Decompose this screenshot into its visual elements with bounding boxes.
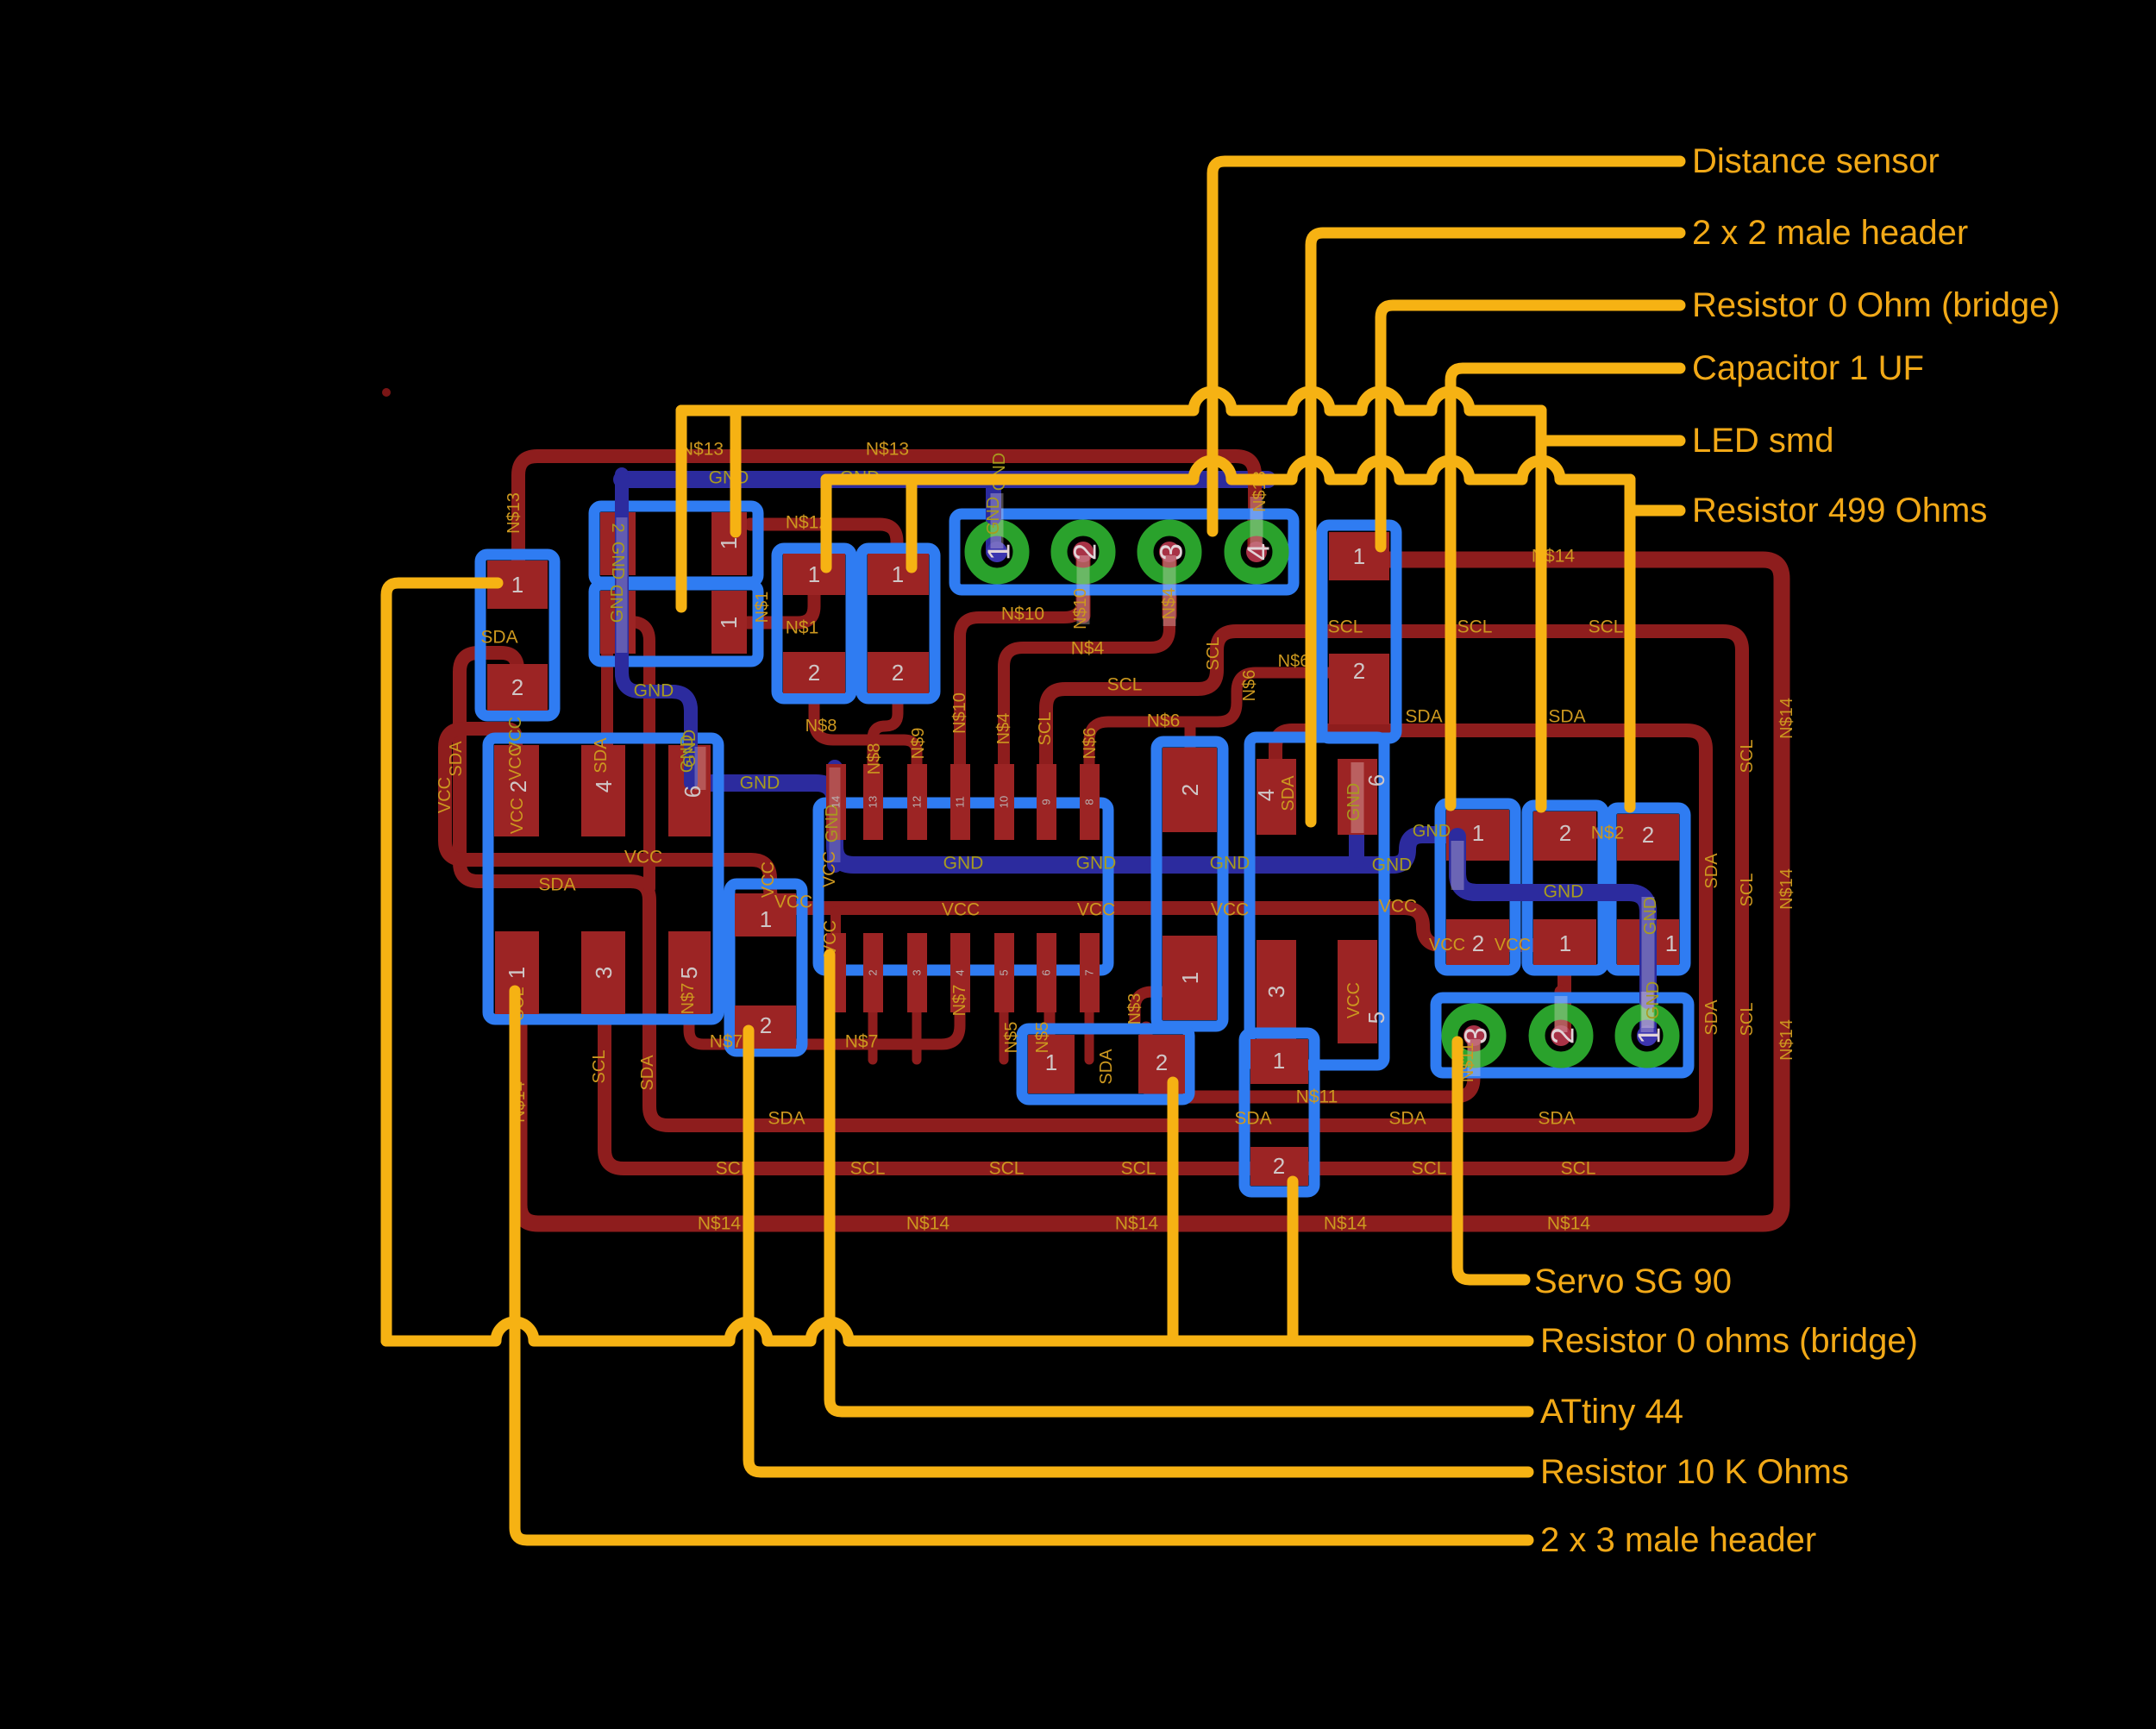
- svg-text:N$6: N$6: [1081, 728, 1100, 760]
- svg-text:8: 8: [1083, 799, 1096, 805]
- svg-text:2: 2: [608, 523, 627, 532]
- svg-text:6: 6: [1363, 774, 1389, 786]
- svg-text:SDA: SDA: [1234, 1109, 1271, 1129]
- svg-text:2: 2: [505, 780, 531, 792]
- svg-text:N$2: N$2: [1591, 824, 1625, 843]
- svg-text:N$10: N$10: [1071, 588, 1090, 630]
- svg-text:SDA: SDA: [1279, 775, 1298, 811]
- svg-text:10: 10: [998, 796, 1011, 808]
- svg-text:VCC: VCC: [1429, 936, 1465, 955]
- svg-text:GND: GND: [1210, 854, 1250, 874]
- svg-text:VCC: VCC: [1344, 982, 1363, 1018]
- svg-text:SCL: SCL: [1121, 1159, 1156, 1179]
- svg-text:GND: GND: [990, 453, 1009, 491]
- svg-text:1: 1: [1559, 930, 1571, 956]
- svg-text:SDA: SDA: [1405, 707, 1442, 727]
- svg-text:N$14: N$14: [1115, 1214, 1159, 1234]
- svg-text:5: 5: [676, 967, 702, 979]
- svg-text:N$14: N$14: [1777, 1019, 1796, 1061]
- svg-text:13: 13: [867, 796, 880, 808]
- svg-text:1: 1: [504, 967, 530, 979]
- svg-text:VCC: VCC: [942, 900, 980, 920]
- svg-text:SCL: SCL: [1412, 1159, 1447, 1179]
- svg-text:GND: GND: [1544, 882, 1584, 902]
- svg-text:4: 4: [591, 780, 617, 792]
- svg-text:2: 2: [1177, 784, 1203, 796]
- svg-text:2: 2: [1545, 1027, 1581, 1044]
- svg-text:SDA: SDA: [1538, 1109, 1575, 1129]
- svg-text:4: 4: [1241, 543, 1276, 561]
- svg-text:5: 5: [998, 969, 1011, 975]
- svg-text:GND: GND: [1372, 855, 1413, 875]
- svg-text:VCC: VCC: [1379, 897, 1417, 917]
- svg-text:6: 6: [680, 786, 705, 798]
- svg-text:N$5: N$5: [1002, 1022, 1021, 1054]
- svg-text:2: 2: [760, 1012, 772, 1038]
- svg-text:1: 1: [1632, 1027, 1667, 1044]
- svg-text:GND: GND: [823, 805, 842, 843]
- svg-text:1: 1: [1045, 1049, 1057, 1075]
- svg-text:SCL: SCL: [1589, 617, 1624, 637]
- svg-text:N$10: N$10: [1001, 605, 1044, 624]
- svg-text:SDA: SDA: [1702, 999, 1721, 1036]
- svg-text:GND: GND: [984, 497, 1003, 535]
- svg-text:ATtiny 44: ATtiny 44: [1540, 1393, 1683, 1431]
- svg-text:N$7: N$7: [710, 1032, 743, 1052]
- svg-text:2: 2: [1068, 543, 1103, 561]
- svg-text:2: 2: [1156, 1049, 1168, 1075]
- svg-text:1: 1: [1665, 930, 1677, 956]
- svg-text:N$7: N$7: [950, 985, 969, 1017]
- svg-text:GND: GND: [943, 854, 984, 874]
- svg-text:N$9: N$9: [909, 728, 928, 760]
- svg-text:N$14: N$14: [698, 1214, 742, 1234]
- svg-text:SCL: SCL: [1457, 617, 1493, 637]
- svg-text:N$4: N$4: [1160, 588, 1179, 620]
- svg-text:N$14: N$14: [906, 1214, 950, 1234]
- svg-text:Resistor 499 Ohms: Resistor 499 Ohms: [1692, 492, 1987, 529]
- svg-text:SCL: SCL: [1738, 1003, 1757, 1037]
- svg-text:SCL: SCL: [1561, 1159, 1596, 1179]
- svg-text:VCC: VCC: [506, 744, 525, 780]
- svg-text:1: 1: [1472, 820, 1484, 846]
- svg-text:SDA: SDA: [447, 741, 466, 777]
- svg-text:N$6: N$6: [1278, 652, 1310, 671]
- svg-text:SCL: SCL: [1204, 637, 1223, 671]
- svg-text:7: 7: [1083, 969, 1096, 975]
- svg-text:4: 4: [954, 969, 967, 975]
- svg-text:GND: GND: [1641, 897, 1660, 935]
- svg-text:1: 1: [1353, 543, 1365, 569]
- svg-text:12: 12: [911, 796, 924, 808]
- svg-text:Resistor 0 ohms (bridge): Resistor 0 ohms (bridge): [1540, 1322, 1918, 1360]
- svg-text:SCL: SCL: [1738, 874, 1757, 907]
- svg-text:5: 5: [1363, 1012, 1389, 1024]
- svg-text:SCL: SCL: [850, 1159, 886, 1179]
- svg-text:1: 1: [716, 537, 742, 549]
- svg-text:N$1: N$1: [753, 592, 772, 623]
- svg-text:N$8: N$8: [805, 717, 837, 736]
- svg-text:GND: GND: [1344, 783, 1363, 821]
- svg-text:1: 1: [511, 572, 523, 598]
- svg-text:2: 2: [511, 674, 523, 700]
- svg-text:N$8: N$8: [865, 743, 884, 775]
- svg-text:VCC: VCC: [820, 851, 839, 887]
- svg-text:SDA: SDA: [1388, 1109, 1426, 1129]
- svg-text:6: 6: [1040, 969, 1053, 975]
- svg-text:3: 3: [591, 967, 617, 979]
- svg-text:VCC: VCC: [1077, 900, 1115, 920]
- svg-text:VCC: VCC: [624, 848, 662, 868]
- svg-text:2 x 2 male header: 2 x 2 male header: [1692, 214, 1968, 252]
- svg-text:2: 2: [1472, 930, 1484, 956]
- svg-text:N$4: N$4: [1071, 639, 1105, 659]
- svg-text:1: 1: [1273, 1048, 1285, 1074]
- svg-text:SDA: SDA: [1097, 1049, 1116, 1085]
- svg-text:SDA: SDA: [1548, 707, 1585, 727]
- svg-text:SCL: SCL: [1107, 675, 1143, 695]
- svg-text:N$14: N$14: [1324, 1214, 1368, 1234]
- svg-text:2: 2: [808, 660, 820, 686]
- svg-text:1: 1: [1177, 972, 1203, 984]
- svg-text:N$6: N$6: [1240, 670, 1259, 702]
- svg-text:GND: GND: [709, 468, 749, 488]
- svg-text:N$3: N$3: [1125, 993, 1144, 1025]
- svg-text:Distance sensor: Distance sensor: [1692, 142, 1940, 180]
- svg-text:VCC: VCC: [436, 777, 454, 813]
- svg-text:N$7: N$7: [845, 1032, 879, 1052]
- svg-text:SDA: SDA: [768, 1109, 805, 1129]
- svg-text:3: 3: [1263, 986, 1289, 998]
- svg-text:SCL: SCL: [1036, 712, 1055, 746]
- svg-text:1: 1: [892, 561, 904, 587]
- svg-text:1: 1: [760, 906, 772, 932]
- svg-text:GND: GND: [1076, 854, 1117, 874]
- svg-text:Servo SG 90: Servo SG 90: [1534, 1262, 1732, 1300]
- svg-text:N$11: N$11: [1296, 1087, 1338, 1107]
- svg-text:GND: GND: [680, 730, 699, 767]
- svg-text:3: 3: [1458, 1027, 1494, 1044]
- svg-text:VCC: VCC: [1495, 936, 1531, 955]
- svg-text:SDA: SDA: [480, 628, 517, 648]
- svg-text:GND: GND: [1644, 981, 1663, 1019]
- svg-text:N$14: N$14: [1777, 868, 1796, 910]
- svg-text:SDA: SDA: [538, 875, 575, 895]
- svg-text:SCL: SCL: [989, 1159, 1025, 1179]
- svg-text:2: 2: [892, 660, 904, 686]
- svg-text:N$1: N$1: [786, 618, 819, 638]
- svg-text:VCC: VCC: [759, 861, 778, 898]
- svg-text:3: 3: [911, 969, 924, 975]
- svg-text:N$7: N$7: [679, 983, 698, 1015]
- svg-text:SDA: SDA: [1702, 853, 1721, 889]
- svg-text:2: 2: [1642, 822, 1654, 848]
- svg-text:N$10: N$10: [950, 692, 969, 734]
- svg-text:LED smd: LED smd: [1692, 422, 1834, 460]
- svg-text:11: 11: [954, 796, 967, 808]
- svg-text:2 x 3 male header: 2 x 3 male header: [1540, 1521, 1816, 1559]
- svg-text:2: 2: [1273, 1153, 1285, 1179]
- svg-text:N$14: N$14: [1547, 1214, 1591, 1234]
- svg-text:VCC: VCC: [774, 893, 812, 912]
- svg-text:SDA: SDA: [638, 1055, 657, 1091]
- svg-text:SCL: SCL: [1328, 617, 1363, 637]
- svg-text:SCL: SCL: [1738, 740, 1757, 774]
- svg-text:N$6: N$6: [1147, 711, 1181, 731]
- svg-text:Capacitor 1 UF: Capacitor 1 UF: [1692, 349, 1924, 387]
- svg-text:N$14: N$14: [1777, 698, 1796, 739]
- svg-text:3: 3: [1154, 543, 1189, 561]
- svg-text:14: 14: [830, 796, 843, 808]
- svg-text:Resistor 10 K Ohms: Resistor 10 K Ohms: [1540, 1453, 1849, 1491]
- svg-text:GND: GND: [634, 681, 674, 701]
- svg-text:N$5: N$5: [1033, 1022, 1052, 1054]
- svg-text:GND: GND: [608, 585, 627, 623]
- svg-text:Resistor 0 Ohm (bridge): Resistor 0 Ohm (bridge): [1692, 286, 2060, 324]
- svg-text:VCC: VCC: [508, 798, 527, 834]
- svg-text:N$4: N$4: [994, 713, 1013, 745]
- svg-text:2: 2: [1559, 820, 1571, 846]
- svg-text:2: 2: [1353, 658, 1365, 684]
- svg-text:GND: GND: [1413, 822, 1451, 841]
- svg-text:2: 2: [867, 969, 880, 975]
- svg-text:SDA: SDA: [592, 737, 611, 774]
- svg-text:N$13: N$13: [505, 492, 523, 534]
- svg-text:9: 9: [1040, 799, 1053, 805]
- svg-text:1: 1: [716, 617, 742, 629]
- svg-text:SCL: SCL: [590, 1050, 609, 1084]
- svg-text:1: 1: [808, 561, 820, 587]
- svg-text:GND: GND: [608, 542, 627, 579]
- svg-text:1: 1: [981, 543, 1017, 561]
- svg-text:GND: GND: [740, 774, 780, 793]
- svg-text:N$13: N$13: [866, 440, 909, 460]
- svg-text:VCC: VCC: [1211, 900, 1249, 920]
- svg-text:4: 4: [1253, 789, 1279, 801]
